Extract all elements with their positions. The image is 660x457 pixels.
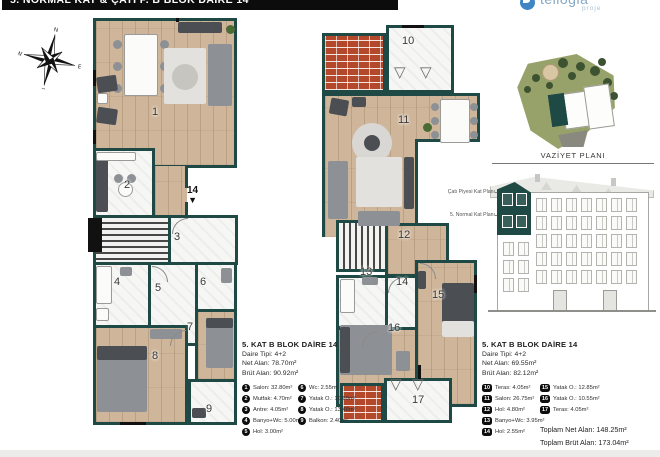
- window-icon: [551, 270, 562, 284]
- legend-item-11: 11Salon: 26.75m²: [482, 394, 544, 405]
- room-label-11: 11: [398, 114, 409, 126]
- room-label-6: 6: [200, 276, 206, 288]
- room-number-badge: 17: [540, 406, 550, 414]
- window-icon: [536, 216, 547, 230]
- room-number-badge: 8: [298, 406, 306, 414]
- window-icon: [536, 270, 547, 284]
- window-icon: [596, 270, 607, 284]
- window-icon: [551, 234, 562, 248]
- window-icon: [596, 216, 607, 230]
- entrance-door: [603, 290, 617, 311]
- room-area-text: Salon: 26.75m²: [495, 396, 534, 402]
- legend-plan-a: 5. KAT B BLOK DAİRE 14 Daire Tipi: 4+2 N…: [242, 340, 392, 443]
- room-label-3: 3: [174, 231, 180, 243]
- legend-plan-b: 5. KAT B BLOK DAİRE 14 Daire Tipi: 4+2 N…: [482, 340, 660, 443]
- company-logo: tellogia proje: [520, 0, 655, 17]
- sofa: [328, 161, 348, 219]
- room-number-badge: 4: [242, 417, 250, 425]
- room-balkon: [188, 379, 237, 425]
- compass-rose-icon: NESW: [12, 20, 88, 96]
- room-number-badge: 1: [242, 384, 250, 392]
- elevation-label-normal: 5. Normal Kat Planı: [439, 212, 495, 218]
- room-number-badge: 12: [482, 406, 492, 414]
- legend-item-5: 5Hol: 3.00m²: [242, 427, 302, 438]
- legend-item-1: 1Salon: 32.80m²: [242, 383, 302, 394]
- legend-item-9: 9Balkon: 2.40m²: [298, 416, 356, 427]
- room-area-text: Banyo+Wc: 5.00m²: [253, 418, 302, 424]
- room-area-text: Mutfak: 4.70m²: [253, 396, 292, 402]
- room-number-badge: 9: [298, 417, 306, 425]
- window-icon: [566, 270, 577, 284]
- room-teras-10: [386, 25, 454, 93]
- window-icon: [626, 270, 637, 284]
- window-icon: [596, 198, 607, 212]
- window-icon: [551, 216, 562, 230]
- window-icon: [626, 198, 637, 212]
- window-icon: [611, 252, 622, 266]
- room-label-14: 14: [396, 276, 408, 288]
- room-label-12: 12: [398, 229, 410, 241]
- window-icon: [518, 260, 529, 274]
- room-area-text: Hol: 4.80m²: [495, 407, 525, 413]
- legend-title: 5. KAT B BLOK DAİRE 14: [482, 340, 660, 349]
- window-icon: [581, 198, 592, 212]
- room-number-badge: 6: [298, 384, 306, 392]
- page-title: 5. NORMAL KAT & ÇATI P. B BLOK DAİRE 14: [2, 0, 398, 10]
- plant-icon: [423, 123, 432, 132]
- room-label-8: 8: [152, 350, 158, 362]
- window-icon: [503, 242, 514, 256]
- stairs: [336, 220, 388, 272]
- window-icon: [581, 216, 592, 230]
- rug: [356, 157, 402, 207]
- page: 5. NORMAL KAT & ÇATI P. B BLOK DAİRE 14 …: [0, 0, 660, 457]
- window-icon: [566, 234, 577, 248]
- window-icon: [581, 270, 592, 284]
- window-icon: [503, 260, 514, 274]
- room-number-badge: 5: [242, 428, 250, 436]
- legend-item-4: 4Banyo+Wc: 5.00m²: [242, 416, 302, 427]
- window-icon: [566, 216, 577, 230]
- elevation-label-cati: Çatı Piyesi Kat Planı: [439, 189, 495, 195]
- legend-item-2: 2Mutfak: 4.70m²: [242, 394, 302, 405]
- dining-table: [440, 99, 470, 143]
- window-icon: [536, 234, 547, 248]
- logo-subtitle: proje: [582, 5, 601, 12]
- window-icon: [596, 252, 607, 266]
- tree-icon: [546, 82, 553, 89]
- tree-icon: [590, 66, 600, 76]
- room-number-badge: 10: [482, 384, 492, 392]
- armchair: [96, 107, 118, 126]
- room-label-2: 2: [124, 179, 130, 191]
- room-number-badge: 7: [298, 395, 306, 403]
- room-label-17: 17: [412, 394, 424, 406]
- legend-item-8: 8Yatak O.: 13.48m²: [298, 405, 356, 416]
- toplam-brut-alan: Toplam Brüt Alan: 173.04m²: [540, 438, 660, 447]
- window-icon: [611, 270, 622, 284]
- legend-item-16: 16Yatak O.: 10.55m²: [540, 394, 600, 405]
- totals: Toplam Net Alan: 148.25m² Toplam Brüt Al…: [540, 422, 660, 447]
- divider: [492, 163, 654, 164]
- window-icon: [596, 234, 607, 248]
- legend-item-13: 13Banyo+Wc: 3.95m²: [482, 416, 544, 427]
- floor-plan-normal-kat: 14▼ 123456789: [80, 18, 244, 430]
- tv-cabinet: [404, 157, 414, 209]
- sink: [120, 267, 132, 276]
- sofa: [208, 44, 232, 106]
- tree-icon: [558, 58, 568, 68]
- window-icon: [611, 234, 622, 248]
- tree-icon: [524, 86, 531, 93]
- logo-globe-icon: [520, 0, 535, 10]
- svg-text:N: N: [53, 27, 58, 34]
- window-icon: [536, 252, 547, 266]
- washing-machine: [96, 308, 109, 321]
- room-number-badge: 14: [482, 428, 492, 436]
- ground-line: [488, 310, 656, 312]
- window-icon: [551, 252, 562, 266]
- daire-tipi: Daire Tipi: 4+2: [482, 351, 660, 358]
- window-icon: [611, 198, 622, 212]
- legend-item-17: 17Teras: 4.05m²: [540, 405, 600, 416]
- window-icon: [518, 278, 529, 292]
- roof-brick-area: [322, 33, 386, 93]
- sofa: [358, 211, 400, 226]
- svg-text:S: S: [40, 88, 45, 95]
- tree-canopy: [542, 64, 559, 81]
- wc-sink: [221, 268, 232, 283]
- room-area-text: Antre: 4.05m²: [253, 407, 288, 413]
- nightstand: [396, 351, 410, 371]
- sink: [362, 277, 378, 285]
- svg-text:W: W: [16, 51, 23, 58]
- window-icon: [503, 278, 514, 292]
- tree-icon: [568, 72, 576, 80]
- room-area-text: Balkon: 2.40m²: [309, 418, 348, 424]
- legend-item-6: 6Wc: 2.55m²: [298, 383, 356, 394]
- room-number-badge: 11: [482, 395, 492, 403]
- window-icon: [626, 234, 637, 248]
- room-area-text: Teras: 4.05m²: [495, 385, 530, 391]
- tree-icon: [610, 92, 618, 100]
- roof-window-icon: ▽: [390, 377, 402, 392]
- window-icon: [518, 242, 529, 256]
- bathtub: [340, 279, 355, 313]
- plant-icon: [226, 25, 235, 34]
- tree-icon: [598, 58, 606, 66]
- legend-item-14: 14Hol: 2.55m²: [482, 427, 544, 438]
- window-icon: [626, 216, 637, 230]
- room-label-7: 7: [187, 321, 193, 333]
- legend-item-7: 7Yatak O.: 10.69m²: [298, 394, 356, 405]
- room-label-13: 13: [360, 266, 372, 278]
- room-area-text: Yatak O.: 10.55m²: [553, 396, 600, 402]
- kitchen-counter: [96, 154, 108, 212]
- room-area-text: Yatak O.: 12.85m²: [553, 385, 600, 391]
- legend-item-12: 12Hol: 4.80m²: [482, 405, 544, 416]
- window-icon: [536, 198, 547, 212]
- toplam-net-alan: Toplam Net Alan: 148.25m²: [540, 425, 660, 434]
- room-area-text: Wc: 2.55m²: [309, 385, 339, 391]
- window-icon: [581, 234, 592, 248]
- bathtub: [96, 266, 112, 304]
- window-icon: [626, 252, 637, 266]
- roof-window-icon: ▽: [394, 65, 406, 80]
- highlighted-floors: [497, 182, 531, 235]
- roof-window-icon: ▽: [420, 65, 432, 80]
- legend-item-3: 3Antre: 4.05m²: [242, 405, 302, 416]
- building-elevation: Çatı Piyesi Kat Planı 5. Normal Kat Plan…: [483, 176, 660, 326]
- brut-alan: Brüt Alan: 82.12m²: [482, 370, 660, 377]
- site-plan: VAZİYET PLANI: [488, 52, 658, 166]
- net-alan: Net Alan: 69.55m²: [482, 360, 660, 367]
- window-icon: [581, 252, 592, 266]
- tv-cabinet: [178, 22, 222, 33]
- room-label-4: 4: [114, 276, 120, 288]
- room-area-text: Salon: 32.80m²: [253, 385, 292, 391]
- stairs: [93, 215, 171, 265]
- room-number-badge: 2: [242, 395, 250, 403]
- window-icon: [611, 216, 622, 230]
- armchair: [96, 75, 118, 94]
- room-label-1: 1: [152, 106, 158, 118]
- daire-tipi: Daire Tipi: 4+2: [242, 351, 392, 358]
- entry-marker: 14▼: [187, 186, 198, 206]
- entry-arrow-icon: ▼: [188, 195, 197, 205]
- window-icon: [566, 252, 577, 266]
- room-area-text: Teras: 4.05m²: [553, 407, 588, 413]
- tree-icon: [532, 74, 540, 82]
- room-area-text: Yatak O.: 10.69m²: [309, 396, 356, 402]
- legend-item-10: 10Teras: 4.05m²: [482, 383, 544, 394]
- room-number-badge: 15: [540, 384, 550, 392]
- room-label-9: 9: [206, 403, 212, 415]
- site-plan-label: VAZİYET PLANI: [488, 151, 658, 160]
- net-alan: Net Alan: 78.70m²: [242, 360, 392, 367]
- room-number-badge: 16: [540, 395, 550, 403]
- dining-table: [124, 34, 158, 96]
- entrance-door: [553, 290, 567, 311]
- room-area-text: Hol: 2.55m²: [495, 429, 525, 435]
- window-icon: [566, 198, 577, 212]
- legend-item-15: 15Yatak O.: 12.85m²: [540, 383, 600, 394]
- roof-window-icon: ▽: [412, 377, 424, 392]
- coffee-table: [172, 64, 198, 90]
- room-area-text: Yatak O.: 13.48m²: [309, 407, 356, 413]
- room-number-badge: 3: [242, 406, 250, 414]
- room-label-5: 5: [155, 282, 161, 294]
- armchair: [329, 98, 350, 117]
- window-icon: [551, 198, 562, 212]
- room-label-16: 16: [388, 322, 400, 334]
- room-area-text: Banyo+Wc: 3.95m²: [495, 418, 544, 424]
- room-label-10: 10: [402, 35, 414, 47]
- room-number-badge: 13: [482, 417, 492, 425]
- brut-alan: Brüt Alan: 90.92m²: [242, 370, 392, 377]
- room-area-text: Hol: 3.00m²: [253, 429, 283, 435]
- page-edge: [0, 450, 660, 457]
- tree-icon: [576, 62, 585, 71]
- room-label-15: 15: [432, 289, 444, 301]
